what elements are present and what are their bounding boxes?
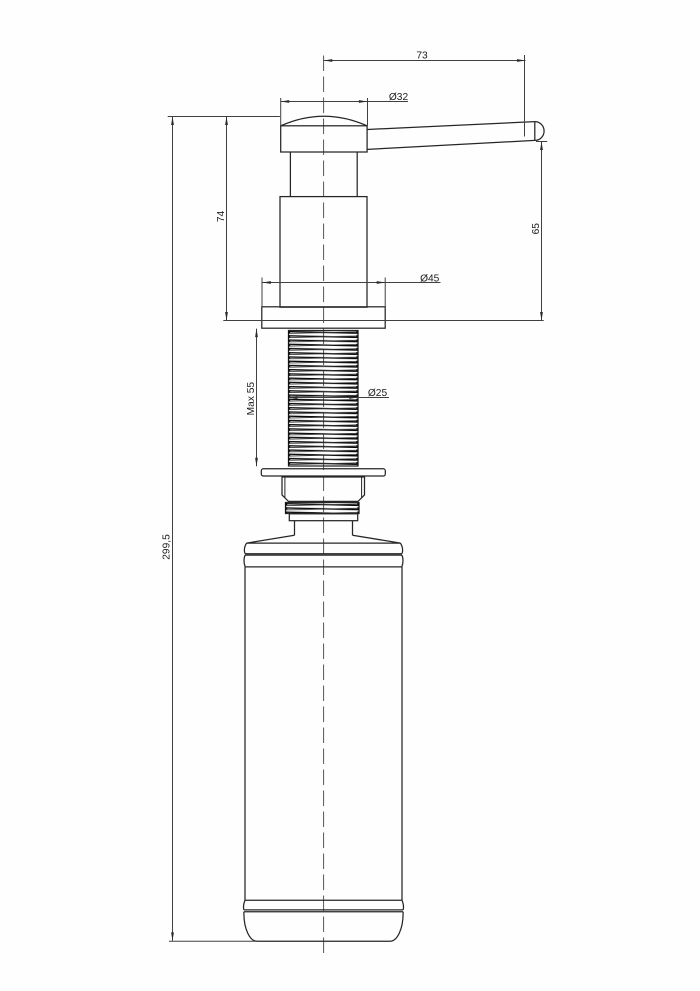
svg-text:Ø45: Ø45 (420, 274, 440, 285)
svg-text:299,5: 299,5 (162, 534, 173, 560)
svg-text:65: 65 (531, 223, 542, 235)
svg-text:Ø25: Ø25 (368, 388, 388, 399)
svg-text:Ø32: Ø32 (389, 92, 409, 103)
svg-text:74: 74 (216, 211, 227, 223)
svg-text:73: 73 (416, 50, 428, 61)
svg-text:Max 55: Max 55 (246, 382, 257, 416)
